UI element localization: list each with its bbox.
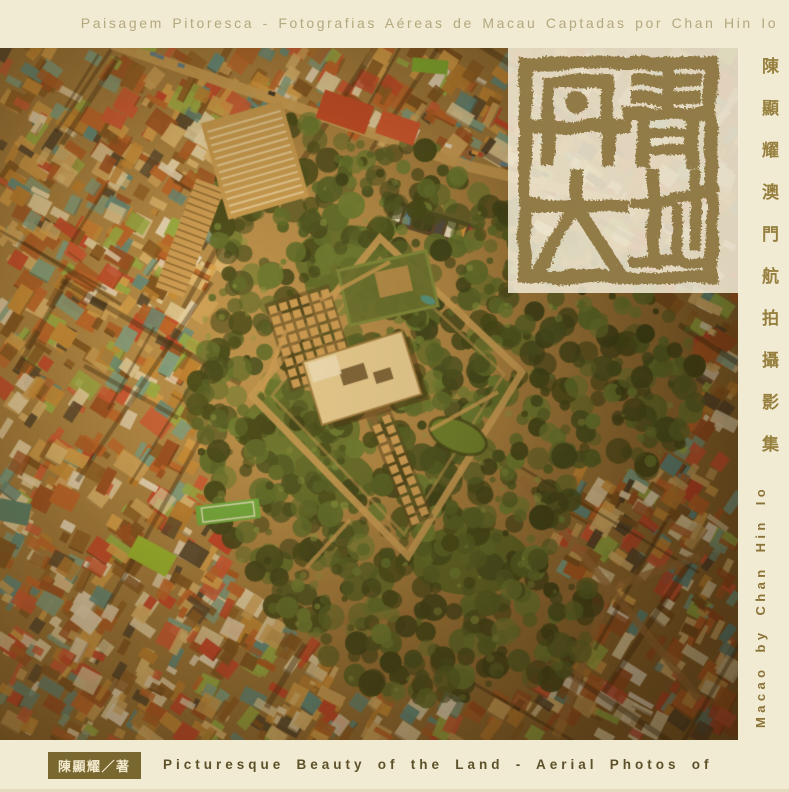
english-subtitle: Picturesque Beauty of the Land - Aerial … xyxy=(163,757,713,772)
seal-panel: 丹 青 大 地 xyxy=(508,48,740,293)
portuguese-title: Paisagem Pitoresca - Fotografias Aéreas … xyxy=(0,15,789,31)
author-box: 陳顯耀／著 xyxy=(48,752,141,779)
seal-graphic xyxy=(518,56,718,284)
spine-chinese-title: 陳顯耀澳門航拍攝影集 xyxy=(747,57,781,477)
spine-english-title: Macao by Chan Hin Io xyxy=(753,485,768,728)
book-cover: Paisagem Pitoresca - Fotografias Aéreas … xyxy=(0,0,789,792)
